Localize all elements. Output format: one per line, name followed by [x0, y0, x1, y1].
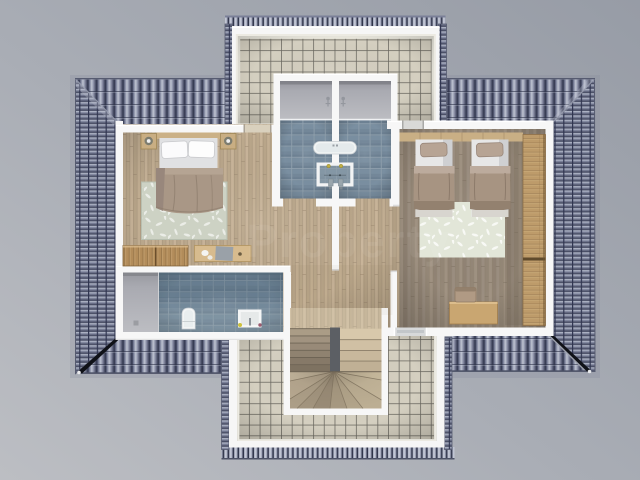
- svg-text:Property: Property: [246, 215, 451, 267]
